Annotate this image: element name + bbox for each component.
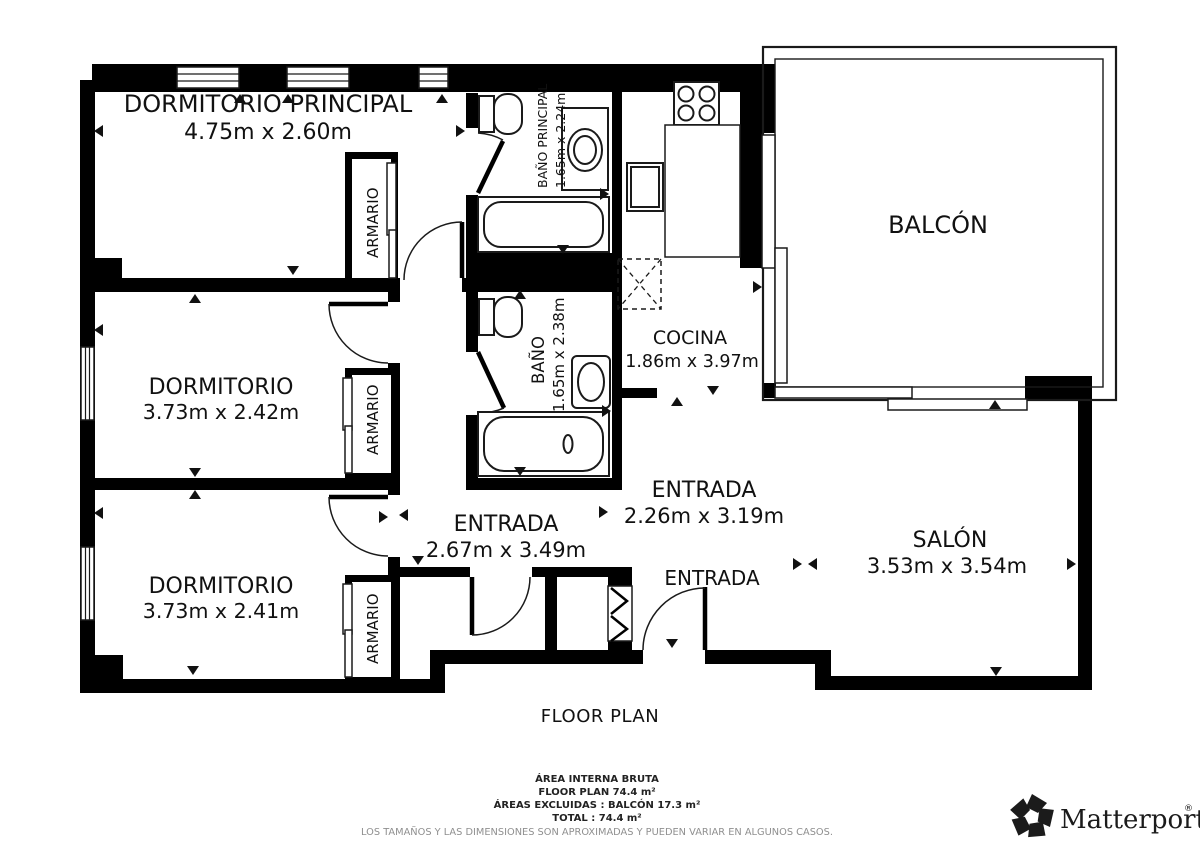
sink-bano: [572, 356, 610, 408]
label-bano: BAÑO: [529, 336, 548, 384]
registered-trademark: ®: [1184, 804, 1193, 814]
toilet-bano: [479, 297, 522, 337]
dims-salon: 3.53m x 3.54m: [867, 554, 1027, 578]
summary-areas-excluidas: ÁREAS EXCLUIDAS : BALCÓN 17.3 m²: [494, 798, 701, 811]
floor-plan-caption: FLOOR PLAN: [541, 706, 659, 727]
dims-bano: 1.65m x 2.38m: [550, 298, 568, 412]
label-dormitorio-3: DORMITORIO: [149, 574, 294, 599]
dims-dormitorio-principal: 4.75m x 2.60m: [184, 120, 352, 145]
window: [419, 67, 448, 88]
label-bano-principal: BAÑO PRINCIPAL: [535, 84, 550, 188]
label-entrada-pasillo: ENTRADA: [454, 512, 559, 537]
label-dormitorio-2: DORMITORIO: [149, 375, 294, 400]
door-bano-principal: [478, 133, 503, 193]
window: [81, 547, 94, 620]
matterport-branding: Matterport ®: [1006, 794, 1200, 844]
matterport-logo-icon: [1006, 794, 1058, 844]
kitchen-dashed-area: [618, 259, 661, 309]
window: [81, 347, 94, 420]
bathtub-bano-principal: [478, 197, 609, 252]
caption-and-summary: FLOOR PLAN ÁREA INTERNA BRUTA FLOOR PLAN…: [361, 706, 833, 838]
door-dormitorio-principal: [404, 222, 462, 280]
windows: [81, 67, 448, 620]
oven: [627, 163, 663, 211]
dims-bano-principal: 1.65m x 2.24m: [553, 93, 568, 188]
window: [287, 67, 349, 88]
bifold-closet-door: [608, 586, 632, 641]
dims-entrada-pasillo: 2.67m x 3.49m: [426, 538, 586, 562]
label-cocina: COCINA: [653, 327, 727, 349]
kitchen-counter: [665, 125, 740, 257]
label-armario-3: ARMARIO: [364, 593, 382, 664]
bathtub-bano: [478, 412, 609, 476]
sliding-door-panels: [762, 135, 1027, 410]
label-armario-1: ARMARIO: [364, 187, 382, 258]
dims-cocina: 1.86m x 3.97m: [625, 352, 759, 372]
summary-area-interna: ÁREA INTERNA BRUTA: [535, 772, 659, 785]
stove: [674, 82, 719, 125]
door-entrada-hall: [472, 577, 530, 635]
summary-total: TOTAL : 74.4 m²: [552, 813, 641, 824]
summary-disclaimer: LOS TAMAÑOS Y LAS DIMENSIONES SON APROXI…: [361, 825, 833, 838]
window: [177, 67, 239, 88]
door-dormitorio-2: [329, 304, 388, 363]
door-bano: [478, 352, 504, 413]
floor-plan-page: DORMITORIO PRINCIPAL 4.75m x 2.60m DORMI…: [0, 0, 1200, 848]
label-balcon: BALCÓN: [888, 209, 988, 239]
summary-floor-plan: FLOOR PLAN 74.4 m²: [538, 787, 655, 798]
washing-machine: [562, 108, 608, 190]
floor-plan-canvas: DORMITORIO PRINCIPAL 4.75m x 2.60m DORMI…: [0, 0, 1200, 848]
label-dormitorio-principal: DORMITORIO PRINCIPAL: [124, 90, 413, 118]
toilet-bano-principal: [479, 94, 522, 134]
label-entrada-central: ENTRADA: [652, 478, 757, 503]
door-dormitorio-3: [329, 497, 388, 556]
matterport-logo-text: Matterport: [1060, 805, 1200, 835]
dims-dormitorio-2: 3.73m x 2.42m: [143, 400, 299, 424]
label-salon: SALÓN: [913, 527, 988, 553]
label-entrada-vestibulo: ENTRADA: [664, 566, 760, 590]
door-main-entrance: [643, 587, 705, 666]
dims-dormitorio-3: 3.73m x 2.41m: [143, 599, 299, 623]
label-armario-2: ARMARIO: [364, 384, 382, 455]
dims-entrada-central: 2.26m x 3.19m: [624, 504, 784, 528]
